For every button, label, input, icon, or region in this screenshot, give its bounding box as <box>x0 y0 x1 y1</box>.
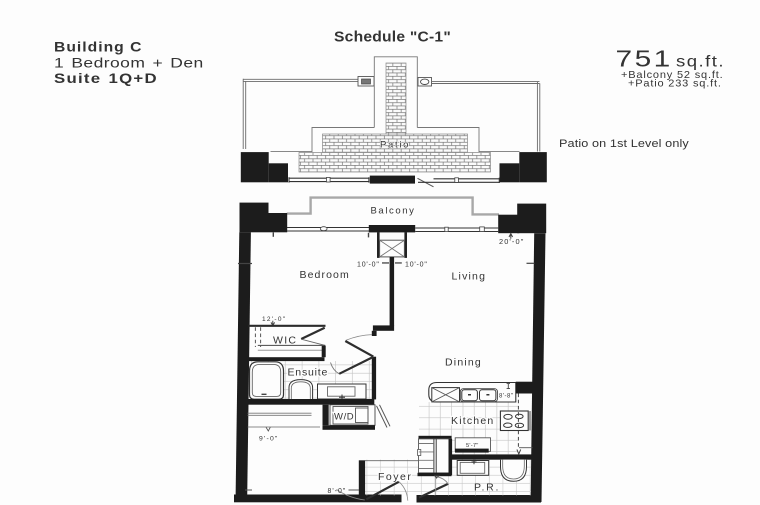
svg-text:Patio: Patio <box>380 140 410 151</box>
svg-text:5'-7": 5'-7" <box>466 443 479 449</box>
svg-text:1 Bedroom + Den: 1 Bedroom + Den <box>54 56 204 71</box>
svg-text:W/D: W/D <box>334 412 354 423</box>
svg-text:9'-0": 9'-0" <box>259 435 279 442</box>
svg-text:Balcony: Balcony <box>371 206 416 217</box>
svg-text:Dining: Dining <box>445 356 482 368</box>
svg-text:Patio on 1st Level only: Patio on 1st Level only <box>559 137 689 150</box>
svg-text:WIC: WIC <box>273 334 297 346</box>
svg-text:Bedroom: Bedroom <box>300 269 350 281</box>
svg-text:Suite 1Q+D: Suite 1Q+D <box>54 71 158 86</box>
svg-text:8'-8": 8'-8" <box>499 394 513 400</box>
svg-text:sq.ft.: sq.ft. <box>676 53 725 70</box>
svg-text:Building C: Building C <box>54 40 142 55</box>
svg-text:10'-0": 10'-0" <box>405 261 428 268</box>
svg-text:Ensuite: Ensuite <box>288 367 329 379</box>
svg-text:Schedule "C-1": Schedule "C-1" <box>334 29 451 45</box>
svg-text:Kitchen: Kitchen <box>451 415 494 427</box>
svg-text:Living: Living <box>452 271 487 283</box>
svg-text:P.R.: P.R. <box>474 482 500 494</box>
svg-text:Foyer: Foyer <box>378 471 412 483</box>
svg-text:751: 751 <box>616 46 673 72</box>
svg-text:20'-0": 20'-0" <box>499 237 524 246</box>
svg-text:12'-0": 12'-0" <box>262 316 286 323</box>
svg-text:10'-0": 10'-0" <box>357 261 380 268</box>
svg-text:+Patio 233 sq.ft.: +Patio 233 sq.ft. <box>628 78 722 89</box>
svg-text:8'-0": 8'-0" <box>328 488 347 495</box>
